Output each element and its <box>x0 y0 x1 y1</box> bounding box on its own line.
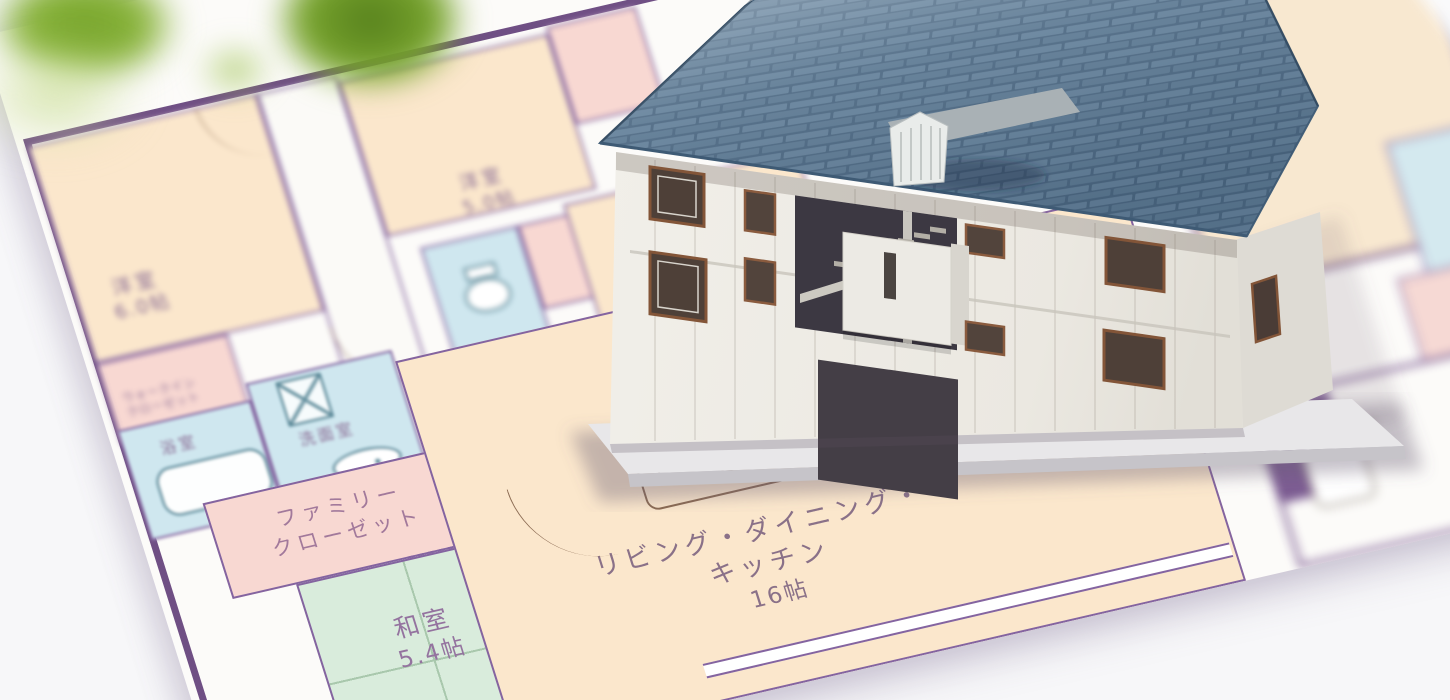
balcony-front <box>843 232 951 345</box>
window-lower-3 <box>966 322 1004 355</box>
window-upper-2 <box>745 190 775 234</box>
balcony-slit-window <box>884 252 896 300</box>
passage-opening <box>818 360 958 500</box>
plant-leaf-blob <box>180 30 290 110</box>
balcony <box>843 228 969 357</box>
window-lower-4 <box>1104 330 1164 389</box>
window-upper-3 <box>966 225 1004 258</box>
photo: 洋室 6.0帖 洋室 5.0帖 ウォークイン クローゼット 浴室 洗面室 <box>0 0 1450 700</box>
window-upper-4 <box>1106 237 1164 291</box>
window-side <box>1252 276 1280 342</box>
side-wall-face <box>1235 212 1333 428</box>
window-lower-2 <box>745 258 775 304</box>
side-wall <box>1235 212 1333 428</box>
